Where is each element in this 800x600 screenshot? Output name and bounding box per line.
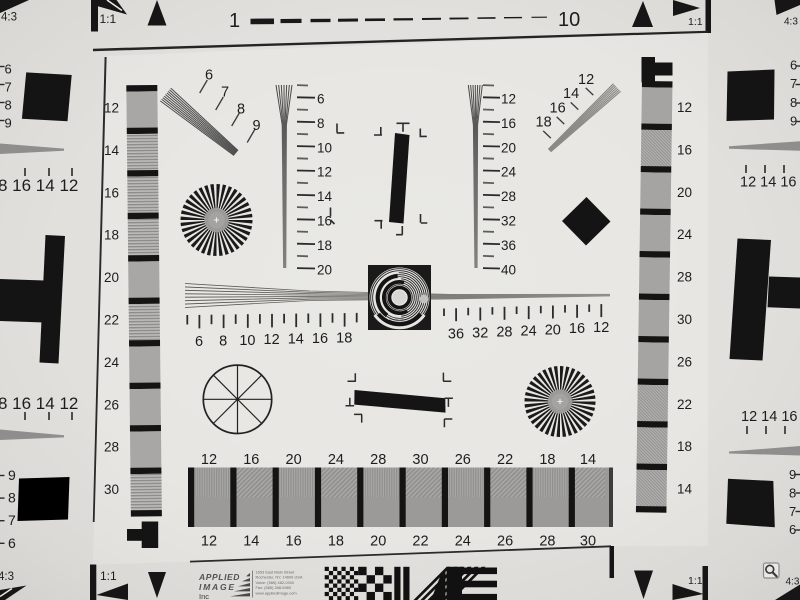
svg-text:24: 24 [328, 452, 344, 468]
svg-text:1:1: 1:1 [100, 569, 117, 583]
svg-text:28: 28 [501, 189, 516, 204]
svg-text:4:3: 4:3 [784, 17, 798, 28]
svg-text:6: 6 [5, 62, 12, 77]
svg-text:10: 10 [558, 9, 580, 31]
svg-text:6: 6 [789, 522, 796, 537]
svg-text:22: 22 [497, 452, 513, 468]
svg-text:1:1: 1:1 [688, 16, 703, 28]
svg-text:28: 28 [370, 452, 386, 468]
svg-text:24: 24 [677, 227, 693, 242]
svg-text:28: 28 [677, 270, 692, 285]
svg-text:24: 24 [455, 534, 471, 550]
svg-text:8 16 14 12: 8 16 14 12 [0, 176, 78, 195]
svg-text:www.appliedimage.com: www.appliedimage.com [256, 590, 298, 595]
svg-text:12: 12 [201, 534, 217, 550]
svg-text:18: 18 [317, 238, 332, 253]
svg-text:6: 6 [8, 535, 16, 551]
svg-text:1:1: 1:1 [688, 575, 703, 587]
svg-text:6: 6 [317, 92, 325, 107]
svg-text:7: 7 [789, 504, 796, 519]
svg-text:APPLIED: APPLIED [198, 572, 240, 582]
svg-text:30: 30 [412, 452, 428, 468]
svg-text:16: 16 [104, 185, 119, 200]
svg-text:22: 22 [104, 313, 119, 328]
svg-text:28: 28 [104, 440, 119, 455]
svg-text:14: 14 [288, 332, 304, 348]
svg-text:8: 8 [5, 98, 12, 113]
svg-text:9: 9 [253, 118, 261, 134]
svg-text:1:1: 1:1 [100, 12, 117, 26]
svg-text:9: 9 [8, 467, 16, 483]
svg-text:14: 14 [580, 452, 596, 468]
svg-text:24: 24 [501, 165, 517, 180]
svg-text:36: 36 [448, 327, 464, 343]
svg-text:16: 16 [569, 321, 585, 337]
svg-text:20: 20 [317, 262, 332, 277]
svg-text:28: 28 [496, 324, 512, 340]
svg-text:26: 26 [104, 397, 119, 412]
svg-text:26: 26 [497, 534, 513, 550]
svg-text:16: 16 [243, 452, 259, 468]
svg-text:14: 14 [317, 189, 333, 204]
svg-text:7: 7 [790, 76, 797, 91]
svg-text:28: 28 [539, 534, 555, 550]
svg-text:8: 8 [317, 116, 325, 131]
svg-text:32: 32 [501, 214, 516, 229]
svg-text:12: 12 [677, 100, 692, 115]
svg-text:14: 14 [243, 534, 259, 550]
svg-text:20: 20 [545, 322, 561, 338]
svg-text:18: 18 [336, 330, 352, 346]
svg-text:8: 8 [237, 102, 245, 118]
svg-text:1653 East Main Street: 1653 East Main Street [256, 569, 296, 574]
svg-text:Inc: Inc [199, 592, 209, 600]
svg-text:8: 8 [219, 333, 227, 349]
svg-text:9: 9 [789, 467, 796, 482]
svg-text:14: 14 [677, 482, 693, 497]
svg-text:24: 24 [104, 355, 120, 370]
svg-text:12: 12 [593, 320, 609, 336]
svg-text:30: 30 [580, 534, 596, 550]
svg-text:16: 16 [312, 331, 328, 347]
svg-text:18: 18 [104, 228, 119, 243]
svg-text:30: 30 [677, 312, 692, 327]
svg-text:12 14 16 1: 12 14 16 1 [741, 409, 800, 425]
svg-text:18: 18 [539, 452, 555, 468]
svg-text:4:3: 4:3 [1, 12, 17, 24]
svg-text:24: 24 [521, 323, 537, 339]
svg-text:6: 6 [195, 334, 203, 350]
svg-text:18: 18 [677, 439, 692, 454]
svg-text:20: 20 [501, 140, 516, 155]
svg-text:16: 16 [550, 101, 566, 117]
svg-text:16: 16 [677, 142, 692, 157]
svg-text:12 14 16 1: 12 14 16 1 [740, 175, 800, 191]
svg-text:8: 8 [789, 485, 796, 500]
svg-text:10: 10 [317, 140, 332, 155]
svg-text:10: 10 [239, 333, 255, 349]
svg-text:20: 20 [286, 452, 302, 468]
svg-text:20: 20 [370, 534, 386, 550]
svg-text:30: 30 [104, 482, 119, 497]
svg-text:40: 40 [501, 262, 516, 277]
svg-text:8 16 14 12: 8 16 14 12 [0, 394, 78, 413]
svg-text:12: 12 [501, 92, 516, 107]
svg-text:20: 20 [104, 270, 119, 285]
svg-text:16: 16 [501, 116, 516, 131]
svg-text:Fax: (585) 288-5989: Fax: (585) 288-5989 [256, 585, 292, 590]
svg-text:IMAGE: IMAGE [199, 582, 236, 592]
svg-text:12: 12 [104, 101, 119, 116]
svg-text:26: 26 [677, 354, 692, 369]
svg-text:26: 26 [455, 452, 471, 468]
svg-text:12: 12 [264, 332, 280, 348]
svg-text:4:3: 4:3 [0, 571, 14, 583]
svg-text:6: 6 [790, 58, 797, 73]
svg-text:8: 8 [8, 490, 16, 506]
svg-text:7: 7 [221, 85, 229, 101]
svg-text:12: 12 [317, 165, 332, 180]
svg-text:18: 18 [536, 115, 552, 131]
svg-text:22: 22 [412, 534, 428, 550]
svg-text:16: 16 [286, 534, 302, 550]
svg-text:18: 18 [328, 534, 344, 550]
svg-text:7: 7 [8, 512, 16, 528]
svg-text:20: 20 [677, 185, 692, 200]
svg-text:32: 32 [472, 325, 488, 341]
svg-text:4:3: 4:3 [786, 577, 800, 588]
svg-text:12: 12 [201, 452, 217, 468]
svg-text:Rochester, NY, 14609 USA: Rochester, NY, 14609 USA [256, 575, 303, 580]
svg-text:6: 6 [205, 68, 213, 84]
svg-text:Voice: (585) 482-0300: Voice: (585) 482-0300 [256, 580, 295, 585]
svg-text:14: 14 [104, 143, 120, 158]
svg-text:12: 12 [578, 72, 594, 88]
svg-text:7: 7 [5, 80, 12, 95]
svg-text:36: 36 [501, 238, 516, 253]
svg-text:9: 9 [5, 116, 12, 131]
svg-text:1: 1 [229, 10, 240, 32]
svg-text:22: 22 [677, 397, 692, 412]
